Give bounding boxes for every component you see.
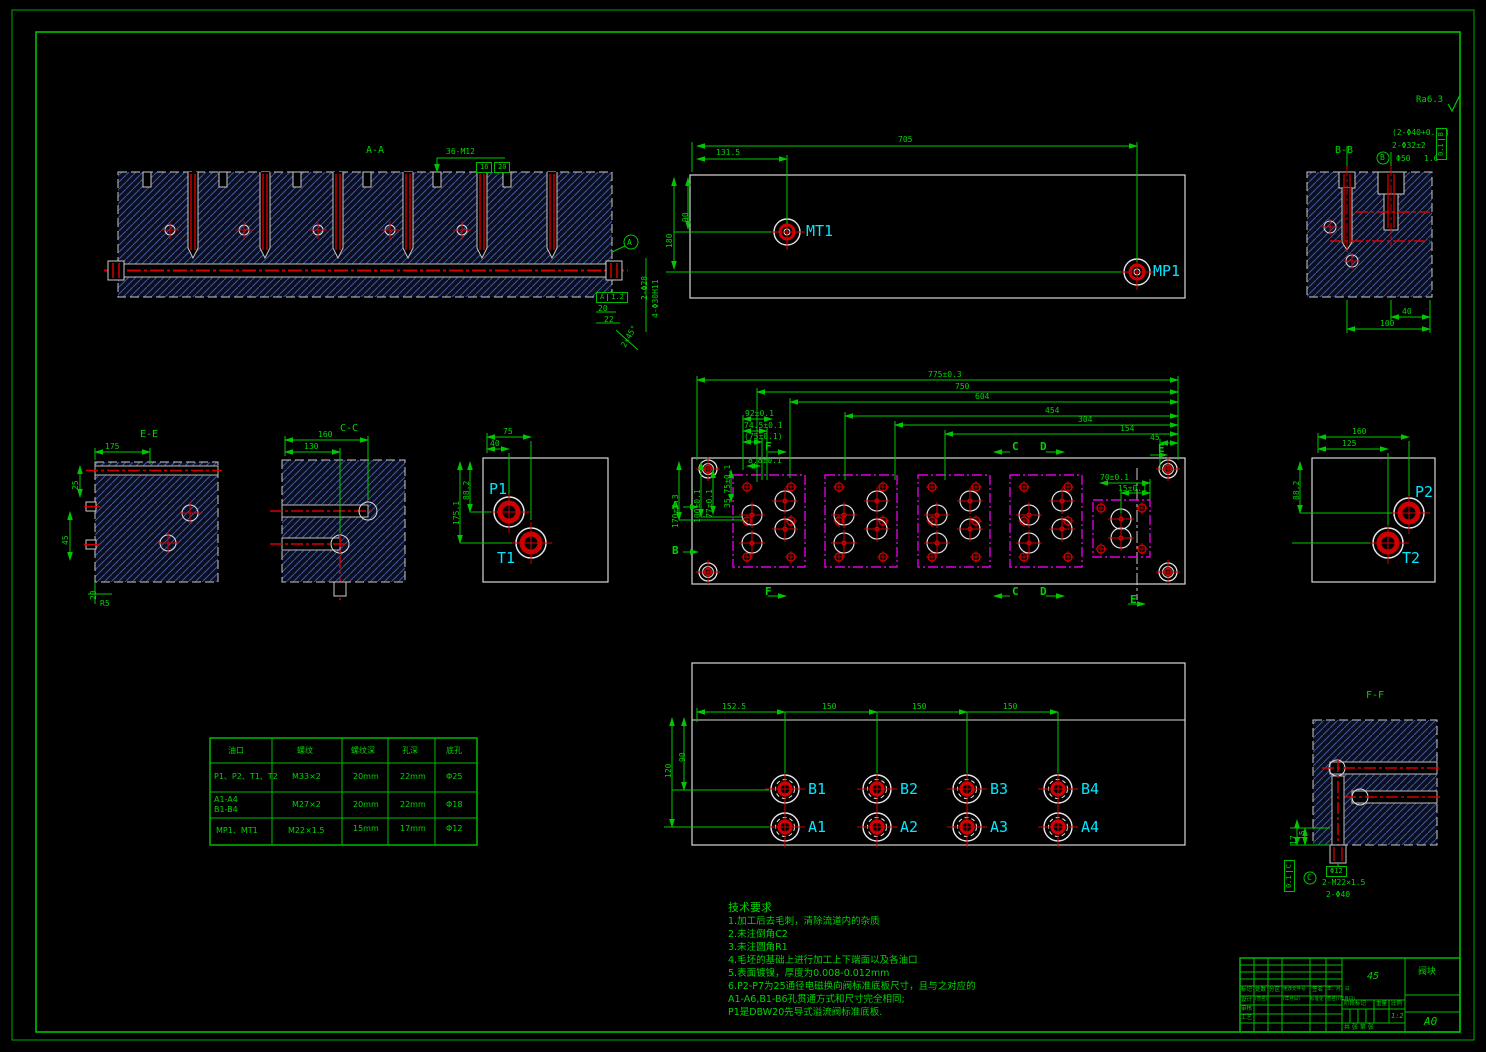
table-cell: 22mm <box>400 800 426 810</box>
cv-dim-70: 70±0.1 <box>1100 474 1129 482</box>
tb-sheet-size: A0 <box>1424 1016 1437 1027</box>
aa-tol-datum: A <box>597 294 607 301</box>
ee-dim-20: 20 <box>90 590 98 600</box>
tb-sheet-note: 共 张 第 张 <box>1344 1025 1374 1031</box>
port-label-t2: T2 <box>1402 551 1420 566</box>
tb-rev-mark: 标记 <box>1241 988 1252 994</box>
view-cc-geometry <box>270 436 405 600</box>
bb-dim-100: 100 <box>1380 320 1394 328</box>
section-mark-e-top: E <box>1158 443 1165 454</box>
cv-dim-45: 45 <box>1150 434 1160 442</box>
port-label-b1: B1 <box>808 782 826 797</box>
table-cell: 22mm <box>400 772 426 782</box>
cv-dim-775: 775±0.3 <box>928 371 962 379</box>
section-mark-d-bottom: D <box>1040 586 1047 597</box>
bb-tol-value: 0.1 <box>1438 140 1445 159</box>
tb-part-name: 阀块 <box>1418 968 1436 977</box>
tech-line: 3.未注圆角R1 <box>728 943 788 953</box>
tb-rev-sign: 签名 <box>1312 988 1323 994</box>
p1-dim-882: 88.2 <box>463 481 471 500</box>
p2-dim-882: 88.2 <box>1293 481 1301 500</box>
top-dim-180: 180 <box>666 234 674 248</box>
p1-dim-1751: 175.1 <box>453 501 461 525</box>
section-mark-b: B <box>672 545 679 556</box>
tb-material: 45 <box>1367 972 1379 982</box>
view-ee-geometry <box>70 448 222 604</box>
cv-dim-100: 100±0.1 <box>694 489 702 523</box>
port-label-p1: P1 <box>489 482 507 497</box>
ee-dim-175: 175 <box>105 443 119 451</box>
ff-callbox: Φ12 <box>1327 868 1346 875</box>
tb-design-sign: (签名) <box>1255 998 1268 1003</box>
port-label-b2: B2 <box>900 782 918 797</box>
view-aa-geometry <box>104 158 646 350</box>
bb-datum-label: B <box>1380 154 1385 162</box>
view-p1t1-geometry <box>460 433 608 582</box>
tech-line: 4.毛坯的基础上进行加工上下端面以及各油口 <box>728 956 918 966</box>
bv-dim-150b: 150 <box>912 703 926 711</box>
table-cell: MP1、MT1 <box>216 826 258 836</box>
tech-line: 6.P2-P7为25通径电磁换向阀标准底板尺寸，且与之对应的 <box>728 982 976 992</box>
p2-dim-160: 160 <box>1352 428 1366 436</box>
cv-dim-750: 750 <box>955 383 969 391</box>
ff-datum-label: C <box>1307 874 1312 882</box>
p1-dim-75: 75 <box>503 428 513 436</box>
section-mark-f-top: F <box>765 441 772 452</box>
view-ff-geometry <box>1290 720 1442 884</box>
aa-depth1: 16 <box>477 164 491 171</box>
p1-dim-40: 40 <box>490 440 500 448</box>
top-dim-705: 705 <box>898 136 912 144</box>
tech-line: 5.表面镀镍，厚度为0.008-0.012mm <box>728 969 889 979</box>
aa-datum-label: A <box>627 239 632 247</box>
roughness-symbol <box>1448 95 1460 111</box>
cv-dim-304: 304 <box>1078 416 1092 424</box>
view-label-ee: E-E <box>140 430 158 440</box>
tb-rev-zone: 分区 <box>1269 988 1280 994</box>
tech-line: 1.加工后去毛刺，清除流道内的杂质 <box>728 917 880 927</box>
table-cell: 15mm <box>353 824 379 834</box>
ff-callout-2: 2-Φ40 <box>1326 891 1350 899</box>
table-cell: 17mm <box>400 824 426 834</box>
table-cell: Φ12 <box>446 824 462 834</box>
p2-dim-125: 125 <box>1342 440 1356 448</box>
cv-dim-604: 604 <box>975 393 989 401</box>
view-label-bb: B-B <box>1335 146 1353 156</box>
bb-dim-40: 40 <box>1402 308 1412 316</box>
tb-weight-label: 重量 <box>1376 1002 1387 1008</box>
ff-dim-15: 15 <box>1299 830 1307 840</box>
tb-rev-docno: 更改文件号 <box>1283 988 1306 993</box>
view-label-ff: F-F <box>1366 691 1384 701</box>
section-mark-e-bottom: E <box>1130 594 1137 605</box>
port-label-p2: P2 <box>1415 485 1433 500</box>
ff-tol-value: 0.1 <box>1286 872 1293 891</box>
cv-dim-88: 8.8±0.1 <box>748 457 782 465</box>
cv-dim-454: 454 <box>1045 407 1059 415</box>
tb-standardize: 标准化 <box>1310 998 1324 1003</box>
top-dim-90: 90 <box>682 212 690 222</box>
port-label-a3: A3 <box>990 820 1008 835</box>
cv-dim-15: 15±0.1 <box>1118 485 1147 493</box>
tech-line: A1-A6,B1-B6孔贯通方式和尺寸完全相同; <box>728 995 905 1005</box>
bb-callout-3: Φ50 <box>1396 155 1410 163</box>
tb-check: 审核 <box>1241 1007 1252 1013</box>
tb-ratio-label: 比例 <box>1391 1002 1402 1008</box>
view-top-geometry <box>666 142 1185 298</box>
tb-std-sign: (签名) <box>1325 998 1338 1003</box>
section-mark-c-top: C <box>1012 441 1019 452</box>
cv-dim-745: 74.5±0.1 <box>744 422 783 430</box>
table-header-pilot: 底孔 <box>446 746 462 756</box>
tb-rev-date: 年、月、日 <box>1327 988 1350 993</box>
ff-tol-datum: C <box>1286 861 1293 872</box>
bv-dim-150a: 150 <box>822 703 836 711</box>
bv-dim-90: 90 <box>679 752 687 762</box>
bv-dim-1525: 152.5 <box>722 703 746 711</box>
view-bb-geometry <box>1307 146 1432 333</box>
cv-dim-3575: 35.75±0.1 <box>724 465 732 508</box>
table-header-port: 油口 <box>228 746 244 756</box>
sheet-border <box>12 10 1474 1040</box>
ee-dim-25: 25 <box>72 480 80 490</box>
tb-design: 设计 <box>1241 998 1252 1004</box>
aa-dim-22: 22 <box>604 316 614 324</box>
port-label-mp1: MP1 <box>1153 264 1180 279</box>
section-mark-d-top: D <box>1040 441 1047 452</box>
table-header-thread: 螺纹 <box>297 746 313 756</box>
aa-callout-2: 4-Φ30H11 <box>652 279 660 318</box>
bb-callout-2: 2-Φ32±2 <box>1392 142 1426 150</box>
view-bottom-geometry <box>664 663 1185 847</box>
tb-design-date: (年月日) <box>1283 998 1300 1003</box>
table-cell: Φ25 <box>446 772 462 782</box>
aa-tol-value: 1.2 <box>607 294 627 301</box>
ee-dim-r5: R5 <box>100 600 110 608</box>
table-header-hole-depth: 孔深 <box>402 746 418 756</box>
table-cell: M33×2 <box>292 772 321 782</box>
port-label-a4: A4 <box>1081 820 1099 835</box>
view-label-aa: A-A <box>366 146 384 156</box>
tech-title: 技术要求 <box>728 902 772 913</box>
tb-process: 工艺 <box>1241 1016 1252 1022</box>
aa-thread-callout: 36-M12 <box>446 148 475 156</box>
aa-callout-1: 2-Φ28 <box>641 276 649 300</box>
bv-dim-150c: 150 <box>1003 703 1017 711</box>
ee-dim-45: 45 <box>62 535 70 545</box>
cc-dim-160: 160 <box>318 431 332 439</box>
table-cell: M27×2 <box>292 800 321 810</box>
cad-sheet: Ra6.3 A-A 36-M12 16 20 A 2-Φ28 4-Φ30H11 … <box>0 0 1486 1052</box>
bv-dim-120: 120 <box>665 764 673 778</box>
cv-dim-92: 92±0.1 <box>745 410 774 418</box>
port-label-a2: A2 <box>900 820 918 835</box>
section-mark-f-bottom: F <box>765 586 772 597</box>
tech-line: 2.未注倒角C2 <box>728 930 788 940</box>
port-label-b4: B4 <box>1081 782 1099 797</box>
drawing-geometry <box>0 0 1486 1052</box>
aa-dim-20: 20 <box>598 305 608 313</box>
roughness-note: Ra6.3 <box>1416 96 1443 105</box>
table-cell: Φ18 <box>446 800 462 810</box>
cv-dim-77: 77±0.1 <box>706 489 714 518</box>
tb-stage-label: 阶段标记 <box>1344 1002 1366 1008</box>
ff-dim-17: 17 <box>1290 835 1298 845</box>
table-cell: 20mm <box>353 772 379 782</box>
cc-dim-130: 130 <box>304 443 318 451</box>
top-dim-1315: 131.5 <box>716 149 740 157</box>
port-label-b3: B3 <box>990 782 1008 797</box>
port-label-t1: T1 <box>497 551 515 566</box>
cv-dim-75: (75±0.1) <box>744 433 783 441</box>
table-cell: 20mm <box>353 800 379 810</box>
bb-tol-datum: B <box>1438 129 1445 140</box>
ff-callout-1: 2-M22×1.5 <box>1322 879 1365 887</box>
tb-scale-value: 1:2 <box>1391 1013 1404 1020</box>
port-label-a1: A1 <box>808 820 826 835</box>
section-mark-a: A <box>672 500 679 511</box>
port-label-mt1: MT1 <box>806 224 833 239</box>
section-mark-c-bottom: C <box>1012 586 1019 597</box>
table-cell: A1-A4 B1-B4 <box>214 795 238 815</box>
table-header-thread-depth: 螺纹深 <box>351 746 375 756</box>
cv-dim-154: 154 <box>1120 425 1134 433</box>
view-label-cc: C-C <box>340 424 358 434</box>
aa-depth2: 20 <box>495 164 509 171</box>
tech-line: P1是DBW20先导式溢流阀标准底板. <box>728 1008 882 1018</box>
tb-rev-count: 处数 <box>1255 988 1266 994</box>
table-cell: P1、P2、T1、T2 <box>214 772 278 782</box>
table-cell: M22×1.5 <box>288 826 325 836</box>
